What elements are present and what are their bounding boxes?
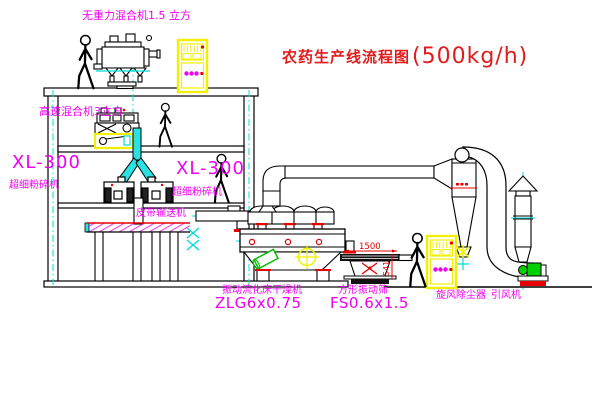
diagram-title: 农药生产线流程图 (500kg/h): [282, 44, 528, 69]
control-cabinet-roof: [178, 40, 207, 92]
label-cyclone: 旋风除尘器: [436, 291, 486, 302]
mill-left: [104, 177, 134, 203]
label-mill-center-model: XL-300: [176, 160, 245, 179]
process-flow-diagram: 1500 541: [0, 0, 600, 403]
mill-center: [141, 177, 173, 203]
induced-draft-fan: [518, 263, 548, 286]
title-capacity: (500kg/h): [412, 44, 528, 69]
exhaust-stack: [509, 176, 537, 262]
worker-roof: [78, 35, 93, 88]
worker-ground: [410, 233, 425, 286]
label-mill-center-name: 超细粉碎机: [172, 188, 222, 199]
gravity-free-mixer: [94, 34, 160, 89]
worker-level2: [160, 103, 172, 146]
label-gravity-mixer: 无重力混合机1.5 立方: [82, 10, 191, 22]
control-cabinet-ground: [427, 236, 456, 288]
exhaust-duct: [259, 166, 434, 212]
sieve-height-dim: 541: [382, 261, 391, 276]
fluid-bed-dryer: [240, 206, 356, 281]
label-mill-left-model: XL-300: [12, 154, 81, 173]
label-mill-left-name: 超细粉碎机: [9, 181, 59, 192]
sieve-length-dim: 1500: [359, 242, 381, 252]
label-sieve-model: FS0.6x1.5: [330, 296, 409, 312]
label-dryer-model: ZLG6x0.75: [215, 296, 302, 312]
title-text: 农药生产线流程图: [282, 46, 410, 67]
label-fan: 引风机: [491, 291, 521, 302]
label-belt-conveyor: 皮带输送机: [136, 209, 186, 220]
label-high-speed-mixer: 高速混合机3立方: [39, 106, 123, 118]
cyclone-outlet: [455, 148, 469, 162]
